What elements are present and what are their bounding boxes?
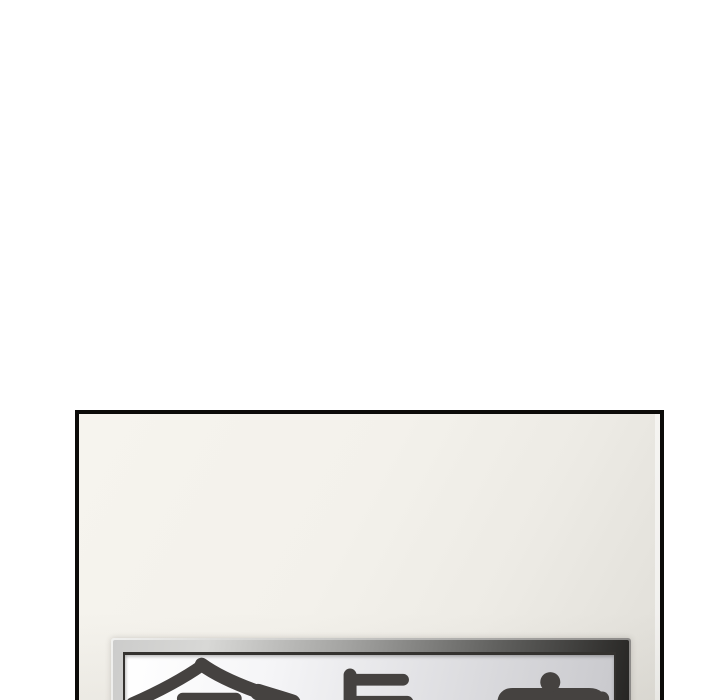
sign-text-glyphs (125, 655, 614, 700)
sign-char-sil-dot (540, 672, 560, 692)
sign-inner-seam: 會長室 (123, 652, 616, 700)
sign-char-sil-top (504, 695, 599, 700)
sign-metal-frame: 會長室 (113, 640, 629, 700)
sign-char-sil-right-corner (587, 692, 609, 700)
comic-panel: 會長室 (75, 410, 664, 700)
sign-char-jang-top (350, 675, 407, 700)
sign-plate: 會長室 (125, 655, 614, 700)
door-sign: 會長室 (111, 638, 631, 700)
sign-glyph-strokes (132, 664, 600, 700)
sign-char-hui-top (132, 664, 292, 700)
page-background: 會長室 (0, 0, 720, 700)
